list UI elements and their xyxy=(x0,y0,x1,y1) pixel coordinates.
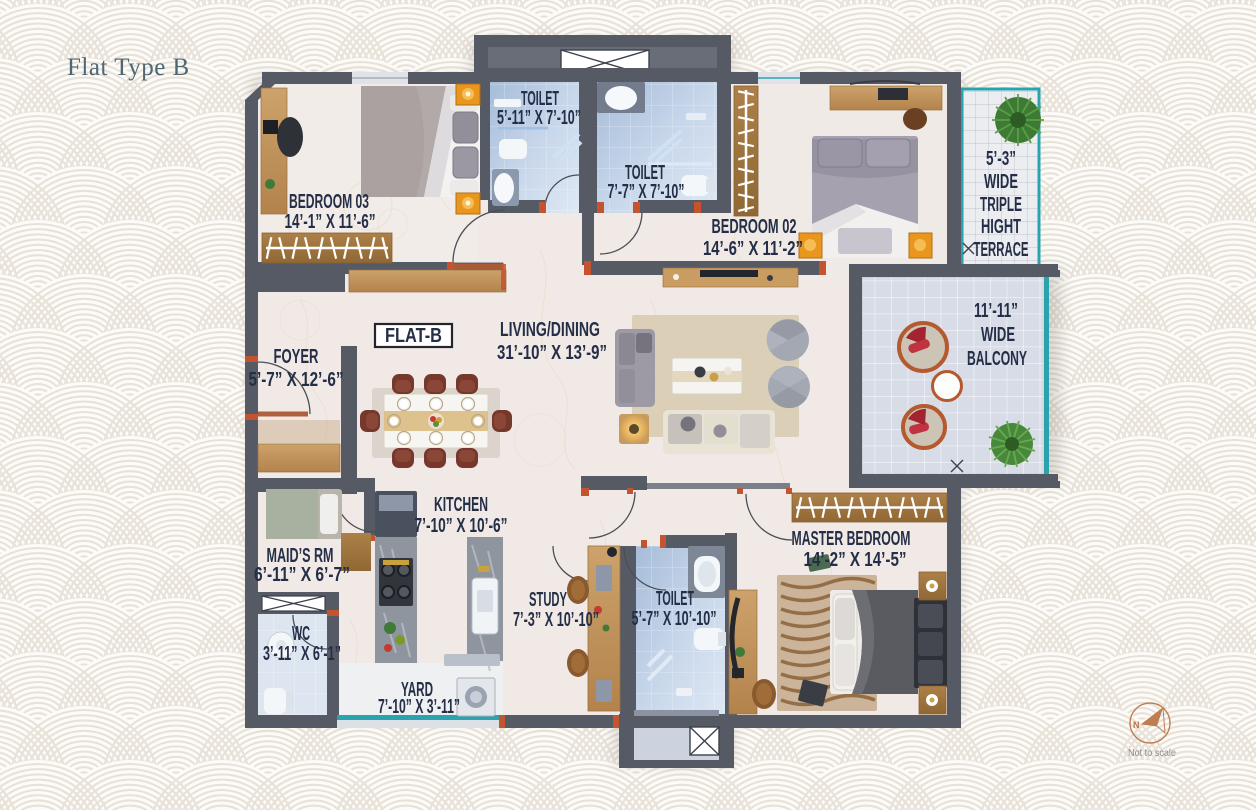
svg-text:11’-11”: 11’-11” xyxy=(974,300,1018,322)
svg-text:7’-7” X 7’-10”: 7’-7” X 7’-10” xyxy=(608,181,685,203)
svg-text:7’-10” X 3’-11”: 7’-10” X 3’-11” xyxy=(378,696,460,718)
svg-text:TRIPLE: TRIPLE xyxy=(980,194,1022,216)
svg-text:Not to scale: Not to scale xyxy=(1128,748,1176,759)
svg-text:5’-7” X 12’-6”: 5’-7” X 12’-6” xyxy=(249,369,344,391)
svg-text:7’-10” X 10’-6”: 7’-10” X 10’-6” xyxy=(415,515,508,537)
svg-text:TERRACE: TERRACE xyxy=(974,239,1029,261)
svg-text:N: N xyxy=(1133,720,1140,730)
svg-text:HIGHT: HIGHT xyxy=(981,216,1021,238)
svg-text:STUDY: STUDY xyxy=(529,589,567,611)
svg-text:Flat Type B: Flat Type B xyxy=(67,54,190,81)
svg-text:BALCONY: BALCONY xyxy=(967,348,1027,370)
svg-text:WIDE: WIDE xyxy=(981,324,1015,346)
svg-text:3’-11” X 6’-1”: 3’-11” X 6’-1” xyxy=(263,643,341,665)
svg-text:7’-3” X 10’-10”: 7’-3” X 10’-10” xyxy=(513,609,599,631)
svg-text:WIDE: WIDE xyxy=(984,171,1018,193)
svg-text:14’-2” X 14’-5”: 14’-2” X 14’-5” xyxy=(804,549,907,571)
svg-text:14’-6” X 11’-2”: 14’-6” X 11’-2” xyxy=(703,238,803,260)
svg-text:6’-11” X 6’-7”: 6’-11” X 6’-7” xyxy=(254,564,350,586)
svg-text:31’-10” X 13’-9”: 31’-10” X 13’-9” xyxy=(497,342,607,364)
svg-text:LIVING/DINING: LIVING/DINING xyxy=(500,319,600,341)
svg-text:WC: WC xyxy=(292,623,310,645)
svg-text:MASTER BEDROOM: MASTER BEDROOM xyxy=(792,528,911,550)
svg-text:5’-11” X 7’-10”: 5’-11” X 7’-10” xyxy=(497,107,581,129)
svg-text:BEDROOM 03: BEDROOM 03 xyxy=(289,191,369,213)
svg-text:5’-7” X 10’-10”: 5’-7” X 10’-10” xyxy=(632,608,717,630)
svg-text:TOILET: TOILET xyxy=(656,588,694,610)
svg-text:KITCHEN: KITCHEN xyxy=(434,494,488,516)
svg-text:FOYER: FOYER xyxy=(274,346,319,368)
svg-text:5’-3”: 5’-3” xyxy=(986,148,1016,170)
svg-text:14’-1” X 11’-6”: 14’-1” X 11’-6” xyxy=(285,211,376,233)
svg-text:BEDROOM 02: BEDROOM 02 xyxy=(712,216,797,238)
svg-text:FLAT-B: FLAT-B xyxy=(385,325,442,347)
